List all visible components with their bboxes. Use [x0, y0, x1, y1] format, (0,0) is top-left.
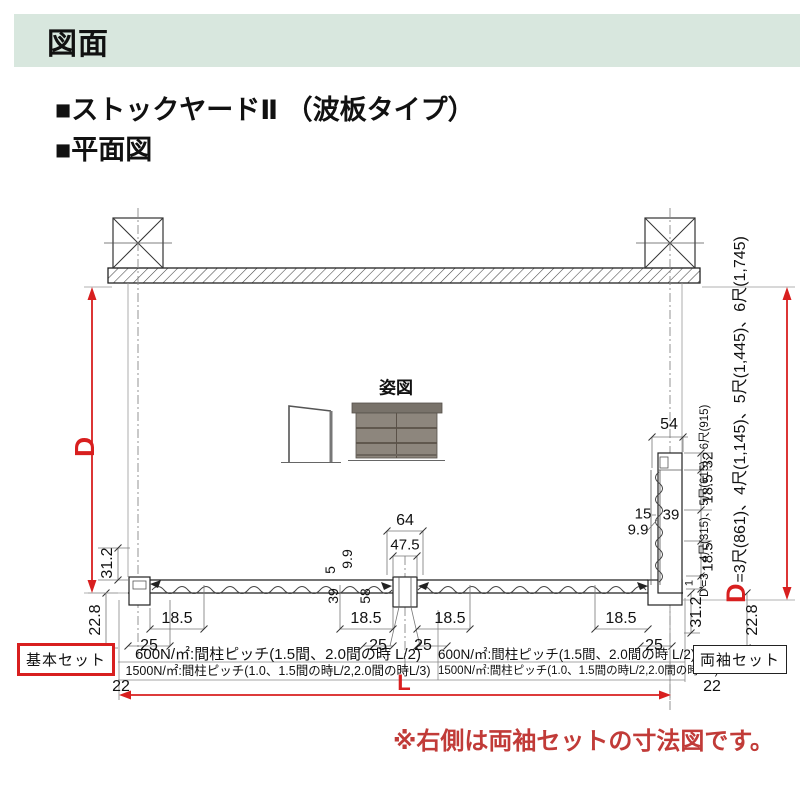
- center-post: [393, 577, 417, 607]
- red-arrowheads: [88, 287, 792, 700]
- d-formula-text: =3尺(861)、4尺(1,145)、5尺(1,445)、6尺(1,745): [733, 236, 749, 582]
- hatched-wall: [108, 268, 700, 283]
- elevation-label: 姿図: [379, 374, 413, 399]
- footnote: ※右側は両袖セットの寸法図です。: [393, 721, 774, 756]
- d-prime-formula: D'=3・4尺(315)、5尺(615)、6尺(915): [700, 405, 712, 597]
- dimension-ticks: [103, 434, 751, 652]
- right-wall-column: [658, 453, 682, 593]
- spec-right-600n: 600N/㎡:間柱ピッチ(1.5間、2.0間の時 L/2): [438, 648, 685, 663]
- spec-right-1500n: 1500N/㎡:間柱ピッチ(1.0、1.5間の時L/2,2.0間の時L/3): [438, 665, 685, 678]
- dimension-d-label: D: [71, 437, 99, 457]
- d-formula-prefix: D: [723, 584, 750, 604]
- red-dim-extensions: [84, 287, 795, 600]
- elevation-side-view: [281, 406, 341, 463]
- red-dimension-arrows: [92, 292, 787, 695]
- d-size-formula: D =3尺(861)、4尺(1,145)、5尺(1,445)、6尺(1,745): [723, 236, 750, 603]
- elevation-front-view: [348, 403, 445, 461]
- spec-left-1500n: 1500N/㎡:間柱ピッチ(1.0、1.5間の時L/2,2.0間の時L/3): [118, 665, 438, 679]
- ryousode-set-box: 両袖セット: [693, 645, 787, 674]
- basic-set-box: 基本セット: [17, 643, 115, 676]
- drawing-page: 図面 ■ストックヤードⅡ （波板タイプ） ■平面図: [0, 0, 800, 800]
- spec-left-600n: 600N/㎡:間柱ピッチ(1.5間、2.0間の時 L/2): [118, 647, 438, 664]
